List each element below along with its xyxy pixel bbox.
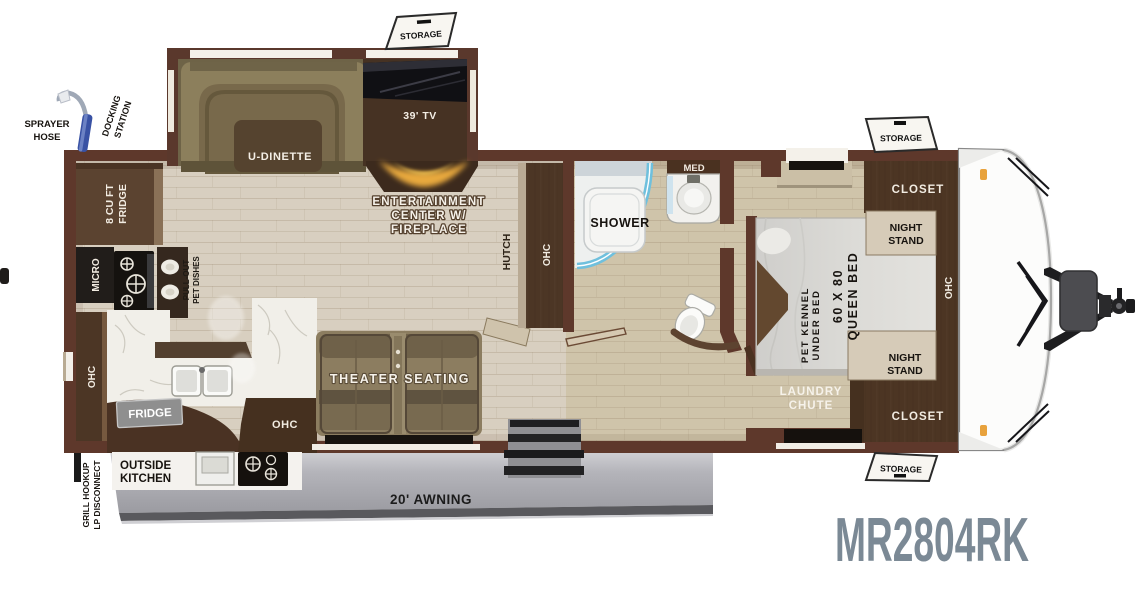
svg-text:STORAGE: STORAGE — [880, 463, 923, 474]
svg-text:CLOSET: CLOSET — [892, 184, 945, 196]
svg-text:PET DISHES: PET DISHES — [192, 256, 201, 304]
svg-text:LAUNDRY: LAUNDRY — [780, 386, 843, 398]
svg-text:MICRO: MICRO — [91, 258, 102, 292]
svg-text:8 CU FT: 8 CU FT — [104, 184, 116, 224]
svg-text:MR2804RK: MR2804RK — [835, 506, 1029, 575]
svg-text:CLOSET: CLOSET — [892, 411, 945, 423]
svg-text:OHC: OHC — [944, 277, 955, 299]
svg-text:THEATER SEATING: THEATER SEATING — [330, 372, 470, 386]
svg-text:FIREPLACE: FIREPLACE — [391, 224, 467, 236]
svg-text:OHC: OHC — [272, 419, 298, 431]
svg-text:STAND: STAND — [888, 235, 924, 247]
svg-text:SPRAYER: SPRAYER — [24, 119, 69, 130]
svg-text:PULL-OUT: PULL-OUT — [182, 260, 191, 301]
svg-text:QUEEN BED: QUEEN BED — [846, 252, 860, 341]
svg-text:SHOWER: SHOWER — [590, 216, 649, 230]
svg-text:FRIDGE: FRIDGE — [117, 184, 129, 224]
svg-text:OHC: OHC — [542, 244, 553, 266]
svg-text:OHC: OHC — [87, 366, 98, 388]
svg-text:20' AWNING: 20' AWNING — [390, 492, 472, 507]
svg-text:CENTER W/: CENTER W/ — [391, 210, 466, 222]
svg-text:UNDER BED: UNDER BED — [811, 290, 822, 361]
svg-text:NIGHT: NIGHT — [890, 222, 923, 234]
svg-text:39' TV: 39' TV — [403, 110, 437, 122]
svg-text:U-DINETTE: U-DINETTE — [248, 151, 312, 163]
svg-text:HOSE: HOSE — [34, 132, 61, 143]
svg-text:STORAGE: STORAGE — [880, 133, 922, 144]
svg-text:HUTCH: HUTCH — [501, 234, 513, 271]
svg-text:KITCHEN: KITCHEN — [120, 473, 171, 485]
svg-text:PET KENNEL: PET KENNEL — [800, 287, 811, 363]
svg-text:NIGHT: NIGHT — [889, 352, 922, 364]
svg-text:GRILL HOOKUP: GRILL HOOKUP — [81, 462, 91, 527]
svg-text:MED: MED — [683, 163, 704, 174]
svg-text:OUTSIDE: OUTSIDE — [120, 460, 171, 472]
svg-text:ENTERTAINMENT: ENTERTAINMENT — [372, 196, 485, 208]
svg-text:FRIDGE: FRIDGE — [128, 407, 172, 421]
svg-text:60 X 80: 60 X 80 — [831, 269, 845, 323]
svg-text:STAND: STAND — [887, 365, 923, 377]
svg-text:LP DISCONNECT: LP DISCONNECT — [92, 460, 102, 530]
svg-text:CHUTE: CHUTE — [789, 400, 834, 412]
